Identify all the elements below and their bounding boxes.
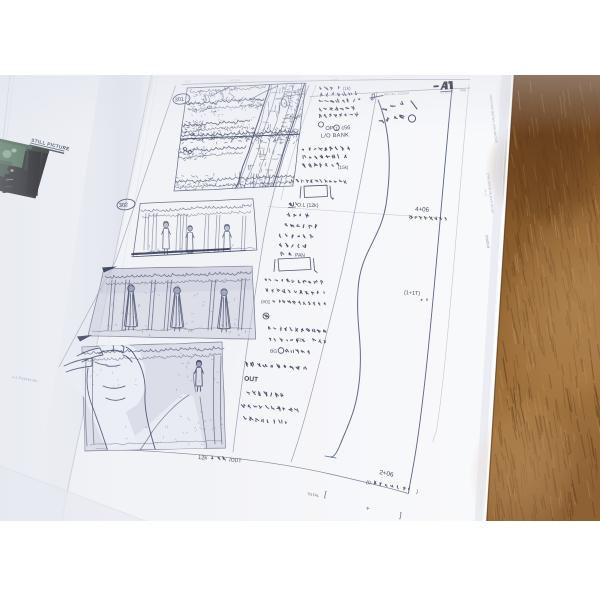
svg-text:4+06: 4+06 xyxy=(415,206,430,214)
svg-text:/OUT: /OUT xyxy=(229,458,243,465)
svg-text:(1+1T): (1+1T) xyxy=(404,290,421,297)
svg-text:2 HA: 2 HA xyxy=(483,189,488,196)
svg-text:302: 302 xyxy=(119,202,128,209)
svg-text:OUT: OUT xyxy=(244,376,258,384)
svg-text:(0.: (0. xyxy=(366,480,373,487)
svg-text:(15k): (15k) xyxy=(338,165,349,170)
svg-text:12k: 12k xyxy=(198,455,208,462)
svg-text:FiX: FiX xyxy=(297,338,305,344)
svg-text:+: + xyxy=(316,271,318,275)
svg-text:O.L (12k): O.L (12k) xyxy=(297,203,319,210)
svg-text:BG: BG xyxy=(270,349,278,355)
svg-text:(#01: (#01 xyxy=(261,299,271,304)
